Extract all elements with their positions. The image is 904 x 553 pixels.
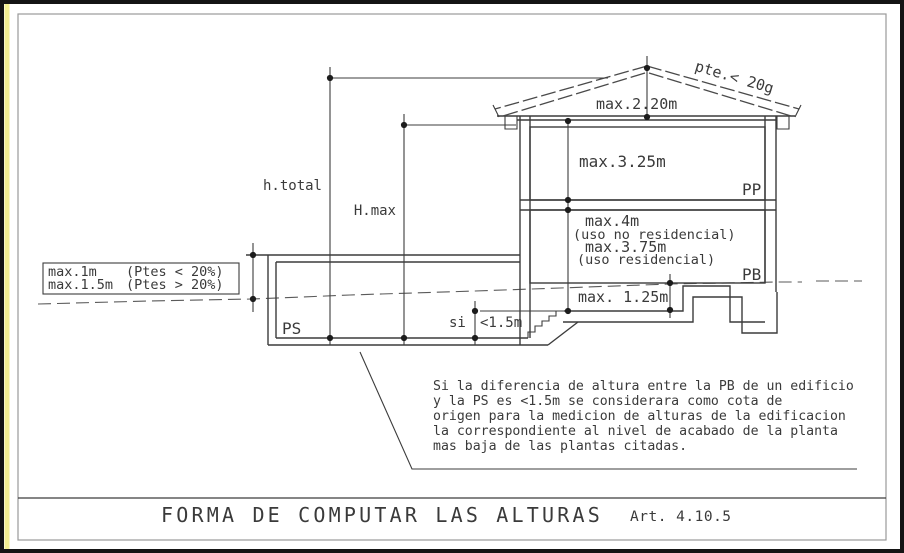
ground-row2-cond: (Ptes > 20%) [126,277,224,293]
note-line-3: origen para la medicion de alturas de la… [433,409,846,424]
pb-res-note: (uso residencial) [577,252,715,268]
h-max-label: H.max [354,203,396,219]
pb-below-label: max. 1.25m [578,288,668,306]
roof-slope-label: pte.< 20g [693,57,776,97]
drawing-sheet: FORMA DE COMPUTAR LAS ALTURAS Art. 4.10.… [0,0,904,553]
si-value-label: <1.5m [480,315,522,331]
foundation-diagonal [548,322,578,345]
sheet-title: FORMA DE COMPUTAR LAS ALTURAS [161,503,603,527]
pp-floor-label: PP [742,180,761,199]
ps-floor-label: PS [282,319,301,338]
ridge-height-label: max.2.20m [596,95,677,113]
title-bar: FORMA DE COMPUTAR LAS ALTURAS Art. 4.10.… [161,503,732,527]
note-line-5: mas baja de las plantas citadas. [433,439,687,454]
ground-offset-box: max.1m (Ptes < 20%) max.1.5m (Ptes > 20%… [43,263,239,294]
h-max-dimension [404,114,516,345]
note-line-4: la correspondiente al nivel de acabado d… [433,424,838,439]
accent-strip [5,4,10,549]
pp-height-label: max.3.25m [579,152,666,171]
h-total-label: h.total [263,178,322,194]
ground-row2-value: max.1.5m [48,277,113,293]
note-callout: Si la diferencia de altura entre la PB d… [360,352,857,469]
si-prefix-label: si [449,315,466,331]
pb-floor-label: PB [742,265,761,284]
article-number: Art. 4.10.5 [630,509,732,525]
cad-canvas: FORMA DE COMPUTAR LAS ALTURAS Art. 4.10.… [0,0,904,553]
note-line-1: Si la diferencia de altura entre la PB d… [433,379,854,394]
note-line-2: y la PS es <1.5m se considerara como cot… [433,394,782,409]
stairs [528,311,564,338]
floor-slab [520,200,776,210]
